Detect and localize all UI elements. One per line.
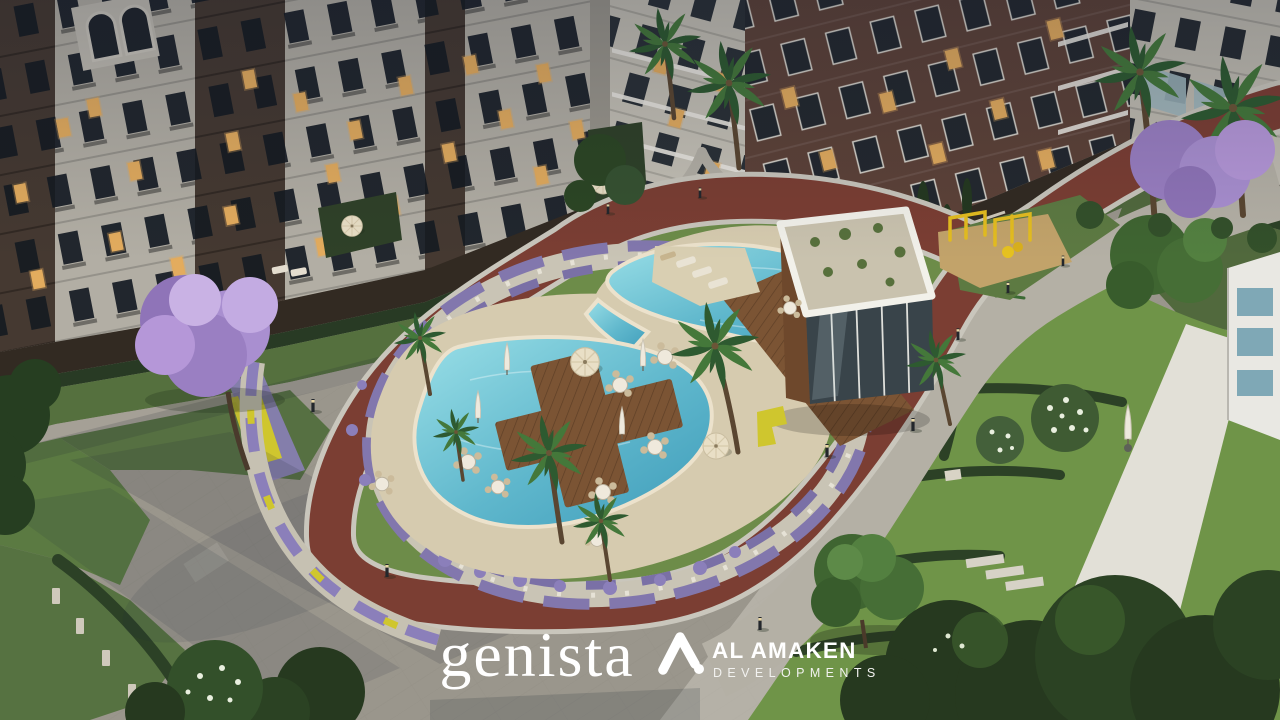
project-logo: genista (439, 619, 634, 690)
white-flower-bush (976, 416, 1024, 464)
compound-aerial-render: genista AL AMAKEN DEVELOPMENTS (0, 0, 1280, 720)
glass-panels (1237, 288, 1273, 396)
pavilion-shadow (770, 404, 930, 436)
developer-subtitle: DEVELOPMENTS (713, 666, 881, 680)
white-flower-bush (1031, 384, 1099, 452)
developer-name: AL AMAKEN (712, 638, 857, 663)
dusk-grade (0, 0, 1280, 260)
scene: genista AL AMAKEN DEVELOPMENTS (0, 0, 1280, 720)
white-building (1228, 252, 1280, 440)
